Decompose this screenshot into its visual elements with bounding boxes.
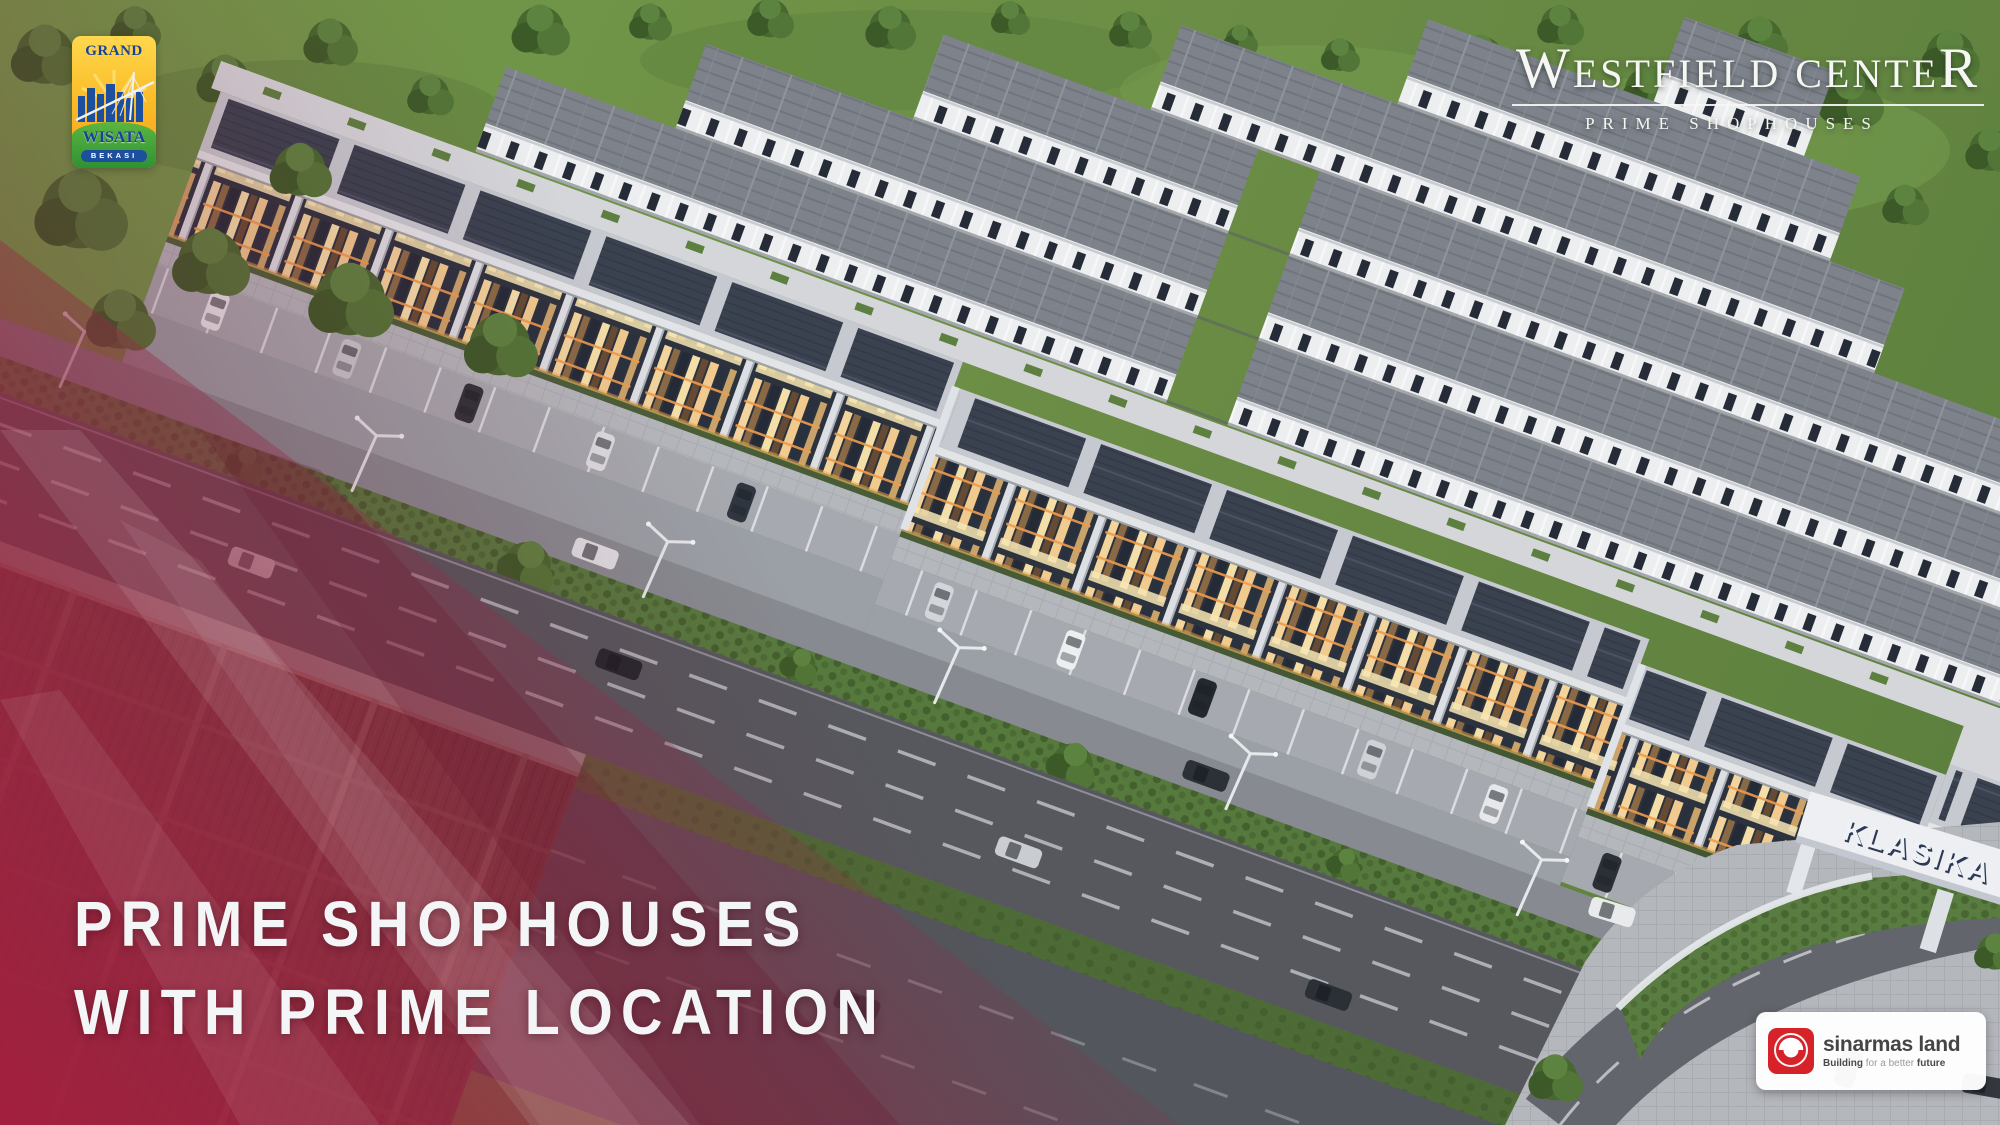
sinarmas-tagline-bold2: future bbox=[1917, 1058, 1945, 1069]
westfield-final-r: R bbox=[1939, 37, 1980, 100]
westfield-subtitle: PRIME SHOPHOUSES bbox=[1512, 114, 1952, 134]
sinarmas-text-block: sinarmas land Building for a better futu… bbox=[1823, 1033, 1960, 1069]
sinarmas-land-card: sinarmas land Building for a better futu… bbox=[1756, 1012, 1986, 1090]
westfield-initial-w: W bbox=[1516, 37, 1573, 100]
headline-line1: PRIME SHOPHOUSES bbox=[74, 880, 886, 968]
grand-wisata-word-wisata: WISATA bbox=[72, 129, 156, 147]
grand-wisata-skyline-icon bbox=[72, 62, 156, 124]
headline: PRIME SHOPHOUSES WITH PRIME LOCATION bbox=[74, 880, 886, 1056]
sinarmas-name: sinarmas land bbox=[1823, 1033, 1960, 1056]
grand-wisata-word-bekasi: BEKASI bbox=[81, 150, 147, 163]
marketing-banner: KLASIKA KLASIKA GRAND WISATA BEKA bbox=[0, 0, 2000, 1125]
headline-line2: WITH PRIME LOCATION bbox=[74, 968, 886, 1056]
westfield-estfield: ESTFIELD bbox=[1573, 51, 1781, 96]
grand-wisata-word-grand: GRAND bbox=[72, 43, 156, 60]
sinarmas-tagline-light: for a better bbox=[1866, 1058, 1914, 1069]
sinarmas-tagline: Building for a better future bbox=[1823, 1058, 1960, 1069]
westfield-cente: CENTE bbox=[1795, 51, 1939, 96]
grand-wisata-logo: GRAND WISATA BEKASI bbox=[72, 36, 156, 168]
sinarmas-logo-icon bbox=[1768, 1028, 1814, 1074]
westfield-center-logo: WESTFIELDCENTER PRIME SHOPHOUSES bbox=[1512, 46, 1952, 134]
sinarmas-tagline-bold1: Building bbox=[1823, 1058, 1863, 1069]
westfield-title: WESTFIELDCENTER bbox=[1512, 46, 1984, 106]
